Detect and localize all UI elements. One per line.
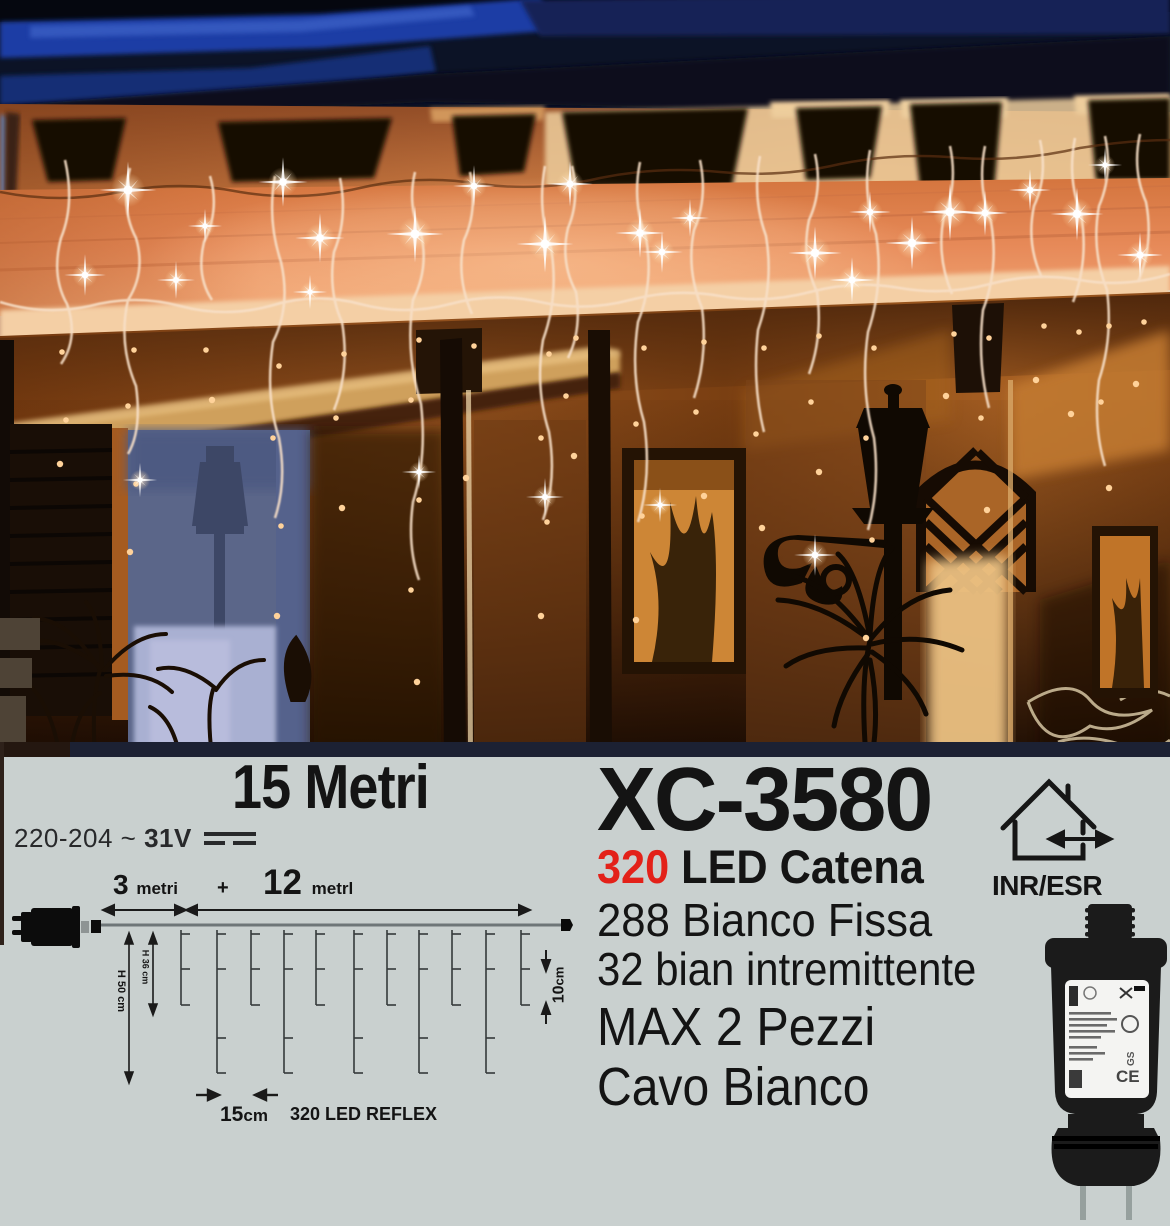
svg-text:CE: CE — [1116, 1067, 1140, 1086]
svg-text:GS: GS — [1126, 1051, 1137, 1066]
